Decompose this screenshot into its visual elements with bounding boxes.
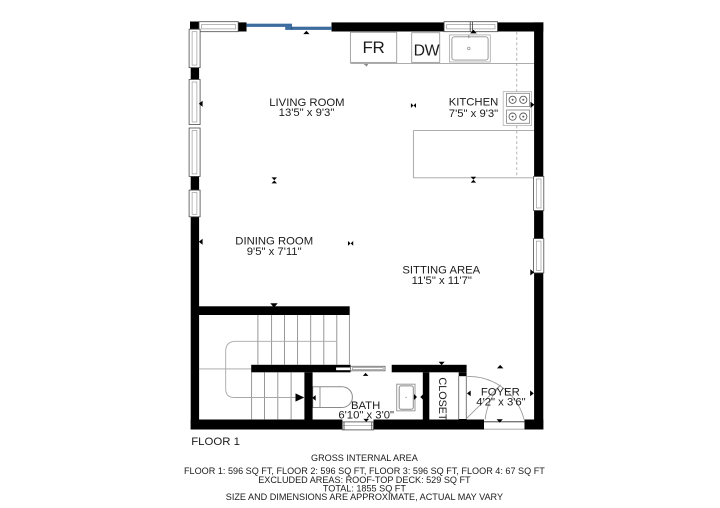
svg-text:FR: FR [362, 38, 384, 57]
svg-text:7'5" x 9'3": 7'5" x 9'3" [449, 108, 498, 120]
svg-text:6'10" x 3'0": 6'10" x 3'0" [338, 410, 394, 422]
svg-text:CLOSET: CLOSET [436, 377, 448, 421]
svg-text:13'5" x 9'3": 13'5" x 9'3" [279, 107, 335, 119]
svg-text:GROSS INTERNAL AREA: GROSS INTERNAL AREA [311, 453, 419, 463]
svg-text:FLOOR 1: FLOOR 1 [191, 436, 240, 448]
svg-text:SIZE AND DIMENSIONS ARE APPROX: SIZE AND DIMENSIONS ARE APPROXIMATE, ACT… [226, 492, 503, 502]
svg-text:9'5" x 7'11": 9'5" x 7'11" [247, 246, 302, 258]
svg-text:4'2" x 3'6": 4'2" x 3'6" [476, 397, 525, 409]
svg-text:11'5" x 11'7": 11'5" x 11'7" [412, 275, 472, 287]
svg-text:DW: DW [414, 42, 440, 59]
